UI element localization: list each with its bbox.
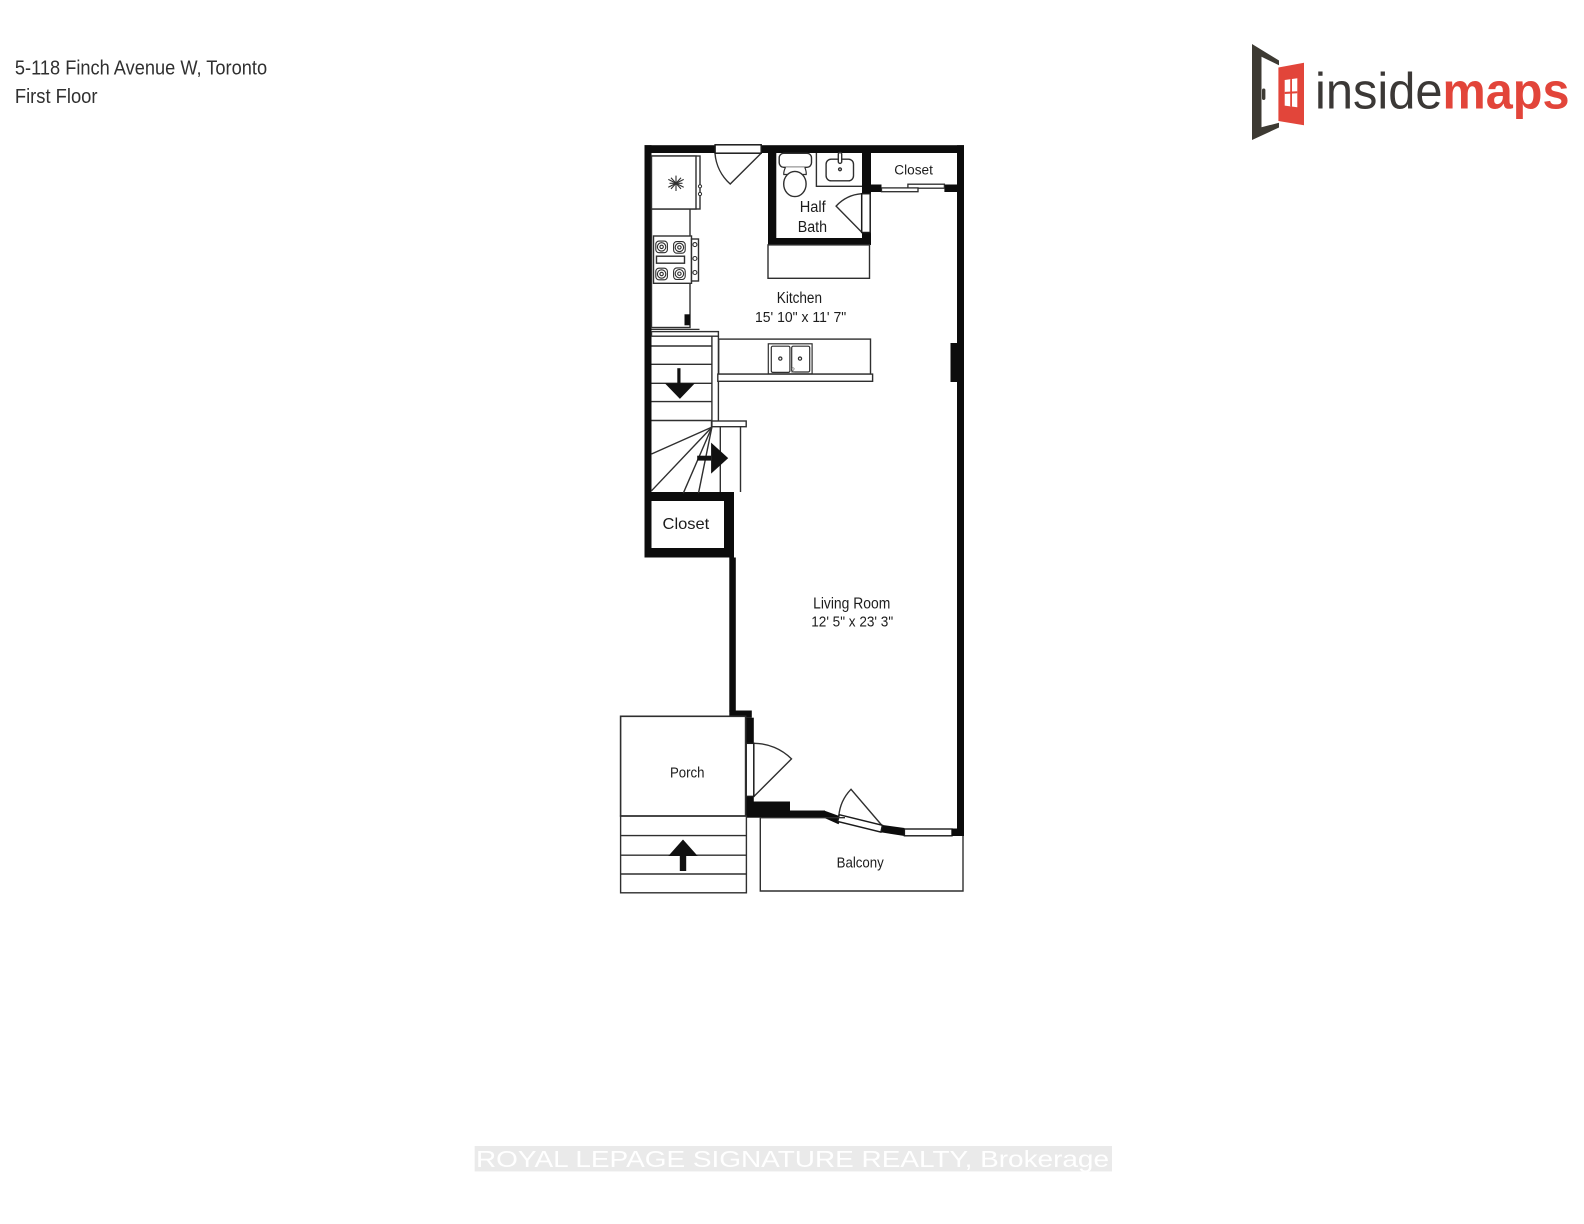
svg-text:5-118 Finch Avenue W, Toronto: 5-118 Finch Avenue W, Toronto — [15, 57, 267, 80]
svg-text:Balcony: Balcony — [837, 854, 885, 871]
svg-text:Closet: Closet — [663, 516, 710, 533]
svg-text:Closet: Closet — [894, 163, 933, 179]
svg-text:Kitchen: Kitchen — [777, 290, 822, 307]
svg-text:Bath: Bath — [798, 219, 827, 236]
svg-text:inside: inside — [1315, 63, 1443, 120]
svg-text:maps: maps — [1443, 63, 1570, 120]
svg-text:ROYAL LEPAGE SIGNATURE REALTY,: ROYAL LEPAGE SIGNATURE REALTY, Brokerage — [476, 1146, 1109, 1172]
svg-text:Living Room: Living Room — [813, 595, 890, 612]
svg-text:12' 5" x 23' 3": 12' 5" x 23' 3" — [811, 614, 893, 630]
svg-text:15' 10" x 11' 7": 15' 10" x 11' 7" — [755, 310, 846, 326]
svg-text:First Floor: First Floor — [15, 85, 98, 108]
svg-text:Porch: Porch — [670, 765, 705, 782]
svg-text:2: 2 — [791, 368, 795, 375]
svg-text:Half: Half — [800, 199, 827, 216]
